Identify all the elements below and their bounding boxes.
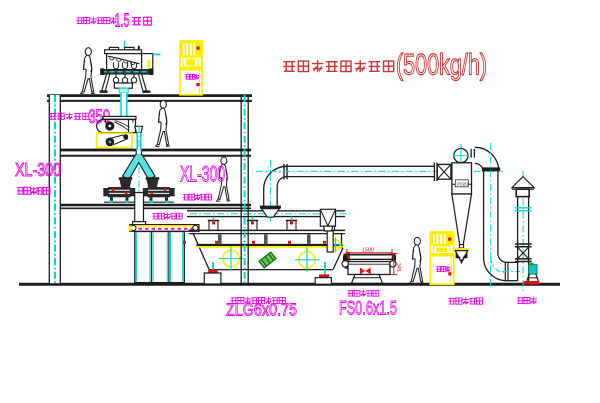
svg-text:ZLG6x0.75: ZLG6x0.75	[226, 300, 297, 320]
svg-text:345: 345	[395, 263, 401, 272]
svg-text:(500kg/h): (500kg/h)	[396, 49, 487, 82]
svg-text:FS0.6x1.5: FS0.6x1.5	[339, 299, 397, 320]
svg-text:1500: 1500	[362, 248, 374, 254]
svg-text:P020: P020	[457, 181, 468, 186]
svg-text:1.5: 1.5	[115, 11, 130, 31]
svg-text:XL-300: XL-300	[15, 160, 61, 180]
svg-text:XL-300: XL-300	[180, 162, 225, 187]
